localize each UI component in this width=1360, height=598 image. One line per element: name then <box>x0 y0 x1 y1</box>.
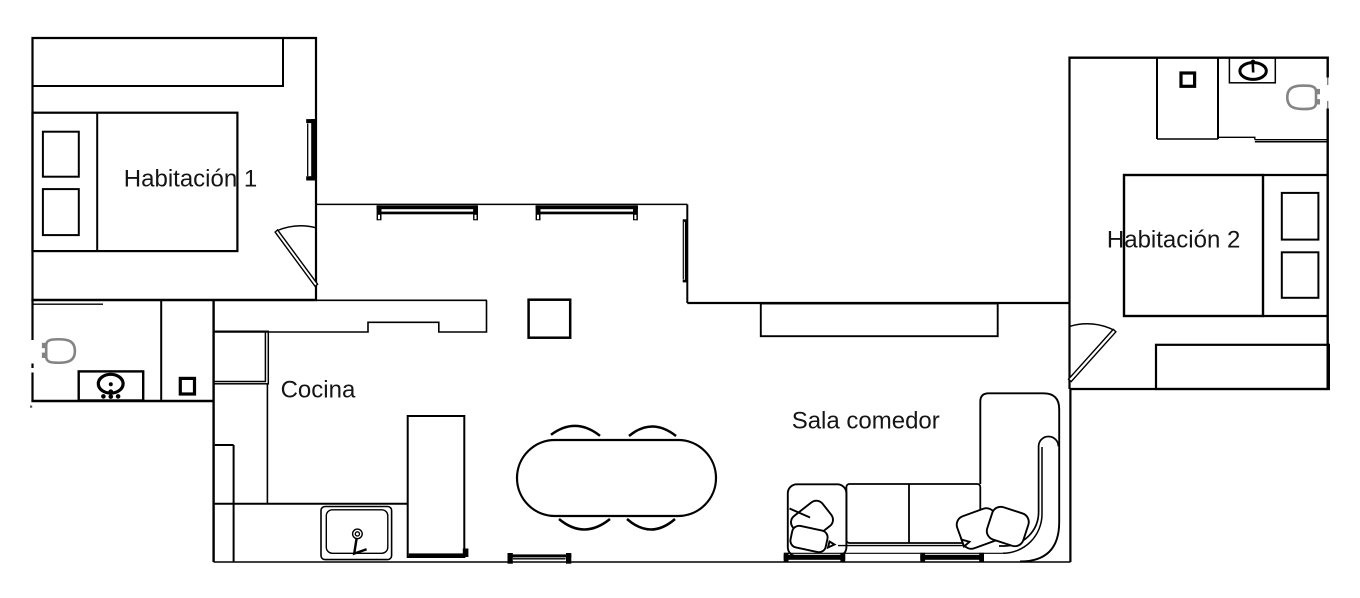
svg-text:Habitación 1: Habitación 1 <box>124 166 257 193</box>
svg-text:Cocina: Cocina <box>281 377 356 404</box>
svg-text:Sala comedor: Sala comedor <box>792 408 940 435</box>
svg-text:Habitación 2: Habitación 2 <box>1107 226 1240 253</box>
